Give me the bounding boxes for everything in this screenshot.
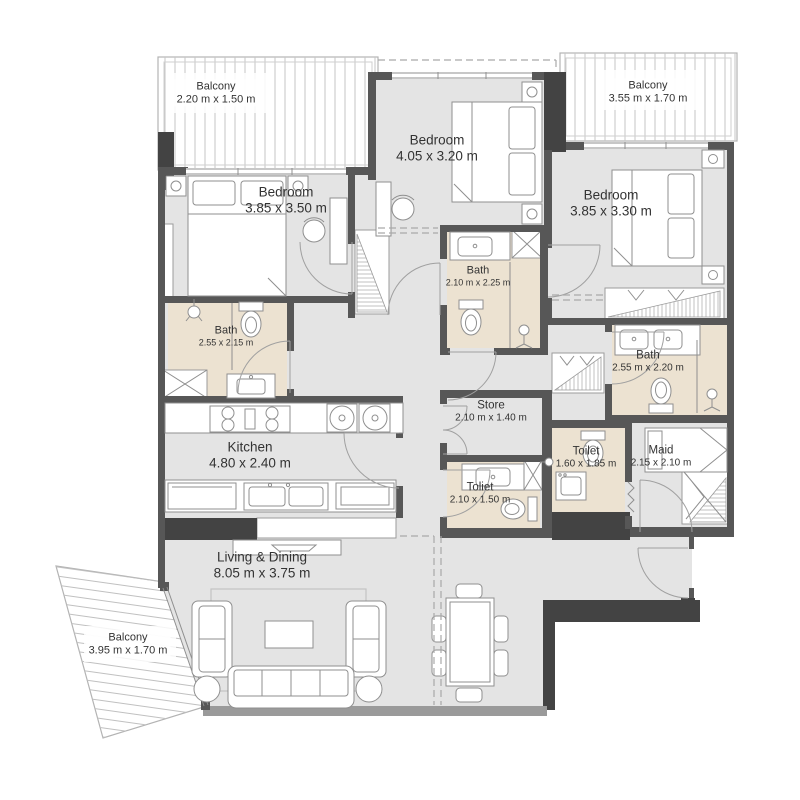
balcony-dashed-extension (378, 60, 556, 71)
floor-plan-canvas: Balcony2.20 m x 1.50 m Bedroom4.05 x 3.2… (0, 0, 800, 800)
room-label-toilet-left: Toliet2.10 x 1.50 m (450, 482, 511, 507)
room-label-balcony-bottom: Balcony3.95 m x 1.70 m (86, 630, 171, 657)
room-label-kitchen: Kitchen4.80 x 2.40 m (209, 439, 291, 470)
room-label-store: Store2.10 m x 1.40 m (455, 400, 527, 425)
room-label-maid: Maid2.15 x 2.10 m (631, 445, 692, 470)
sink-icon (620, 330, 648, 349)
room-label-bath-right: Bath2.55 m x 2.20 m (612, 350, 684, 375)
side-table (194, 676, 220, 702)
toilet-icon (649, 378, 673, 413)
armchair (346, 601, 386, 677)
balcony-top-left-deck (158, 57, 378, 170)
room-label-balcony-top-right: Balcony3.55 m x 1.70 m (606, 78, 691, 105)
corridor-wardrobe (355, 230, 389, 314)
bedroom-right-wardrobe (605, 288, 724, 320)
sink-icon (654, 330, 682, 349)
toilet-icon (459, 300, 483, 335)
stove-icon (210, 406, 290, 432)
room-label-bedroom-left: Bedroom3.85 x 3.50 m (245, 184, 327, 215)
window-bedroom-right (584, 142, 708, 149)
hall-closet (552, 353, 604, 393)
shaft-x-box (163, 370, 207, 398)
coffee-table (265, 621, 313, 648)
sofa (228, 666, 354, 708)
side-table (356, 676, 382, 702)
armchair (192, 601, 232, 677)
room-label-toilet-right: Toilet1.60 x 1.85 m (556, 446, 617, 471)
dining-table (446, 598, 494, 686)
shaft-x-box (524, 460, 542, 490)
floor-plan-drawing (0, 0, 800, 800)
window-bedroom-left (186, 168, 346, 175)
washbasin-icon (556, 472, 586, 500)
kitchen-pass-through-counter (257, 518, 396, 538)
window-bedroom-top (392, 72, 532, 79)
sink-icon (227, 374, 275, 398)
round-sinks-icon (327, 404, 390, 432)
maid-wardrobe (682, 470, 728, 524)
shaft-x-box (512, 230, 542, 258)
room-label-bedroom-top: Bedroom4.05 x 3.20 m (396, 132, 478, 163)
room-label-living-dining: Living & Dining8.05 m x 3.75 m (214, 549, 311, 580)
room-label-bath-middle: Bath2.10 m x 2.25 m (446, 265, 511, 288)
sink-icon (458, 237, 492, 256)
room-label-balcony-top-left: Balcony2.20 m x 1.50 m (174, 79, 259, 106)
room-label-bath-left: Bath2.55 x 2.15 m (199, 325, 254, 348)
room-label-bedroom-right: Bedroom3.85 x 3.30 m (570, 187, 652, 218)
kitchen-sink-icon (244, 483, 328, 510)
